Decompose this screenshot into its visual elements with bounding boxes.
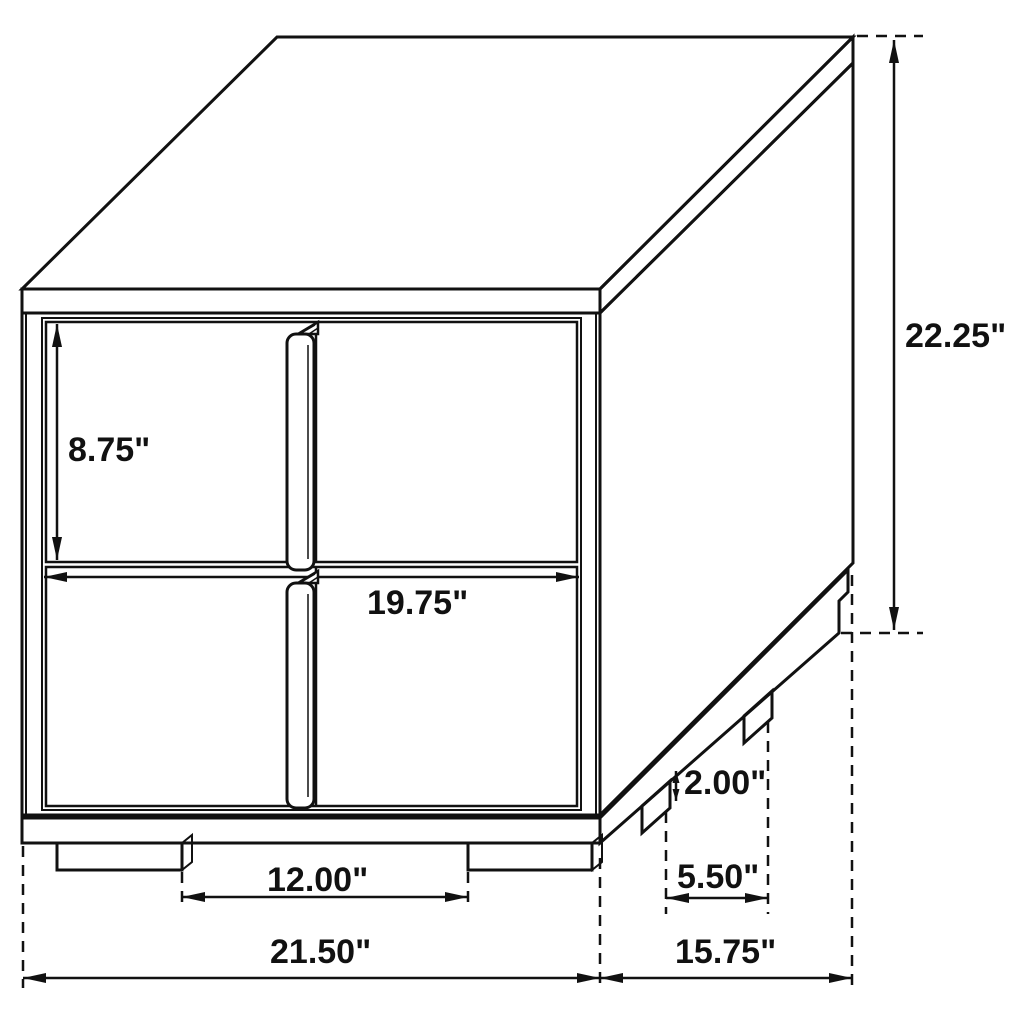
dim-side-foot-spacing: 5.50" <box>666 858 768 898</box>
dim-drawer-front-height-label: 8.75" <box>68 431 150 469</box>
side-panel <box>600 63 853 815</box>
dim-side-foot-spacing-label: 5.50" <box>677 858 759 896</box>
dim-overall-width: 21.50" <box>23 933 600 978</box>
dim-foot-height-label: 2.00" <box>684 764 766 802</box>
diagram-canvas: 8.75" 19.75" 22.25" 2.00" 5.50" 12.00" <box>0 0 1024 1024</box>
front-left-foot <box>57 843 182 870</box>
top-board-front-edge <box>22 289 600 313</box>
dim-overall-height-label: 22.25" <box>905 317 1006 355</box>
top-board-side-edge <box>600 37 853 313</box>
upper-handle-bar <box>287 334 314 570</box>
extension-lines <box>23 36 923 988</box>
plinth-front <box>22 818 600 843</box>
lower-drawer-handle <box>287 571 318 808</box>
dim-front-foot-spacing: 12.00" <box>182 861 468 899</box>
drawer-handles <box>287 322 318 808</box>
dim-overall-width-label: 21.50" <box>270 933 371 971</box>
dim-drawer-front-width-label: 19.75" <box>367 584 468 622</box>
dim-overall-depth-label: 15.75" <box>675 933 776 971</box>
plinth-side <box>600 570 848 843</box>
top-board <box>22 37 853 313</box>
dim-front-foot-spacing-label: 12.00" <box>267 861 368 899</box>
dim-foot-height: 2.00" <box>676 764 766 802</box>
side-back-foot <box>744 691 772 743</box>
lower-handle-bar <box>287 583 314 808</box>
furniture-dimension-diagram: 8.75" 19.75" 22.25" 2.00" 5.50" 12.00" <box>0 0 1024 1024</box>
dim-overall-depth: 15.75" <box>600 933 852 978</box>
side-front-foot <box>642 781 670 833</box>
dimension-annotations: 8.75" 19.75" 22.25" 2.00" 5.50" 12.00" <box>23 36 1006 988</box>
upper-handle-mount-tab <box>298 322 318 334</box>
upper-drawer-handle <box>287 322 318 570</box>
front-right-foot <box>468 843 592 870</box>
dim-drawer-front-height: 8.75" <box>57 324 150 560</box>
dim-overall-height: 22.25" <box>894 40 1006 630</box>
